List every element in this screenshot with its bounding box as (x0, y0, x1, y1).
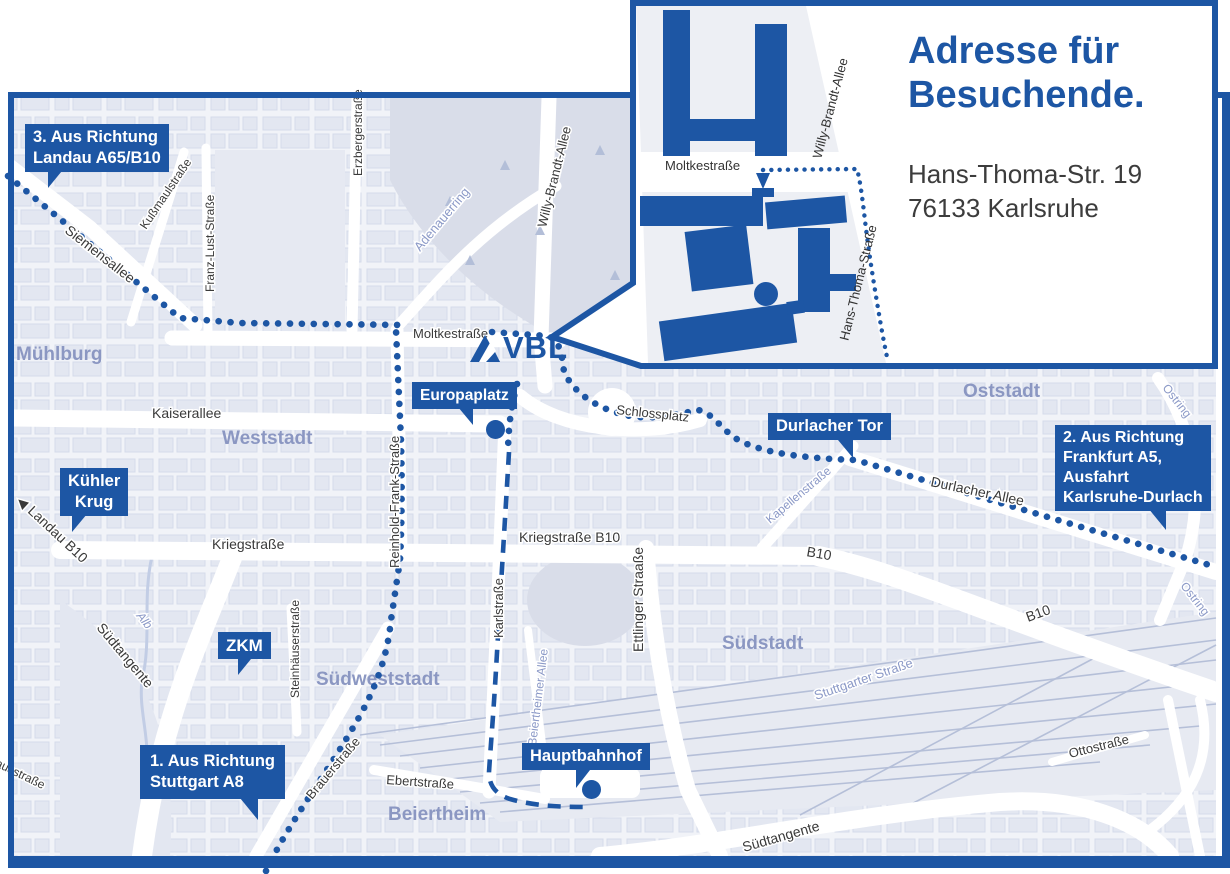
label-from-stuttgart: 1. Aus Richtung Stuttgart A8 (140, 745, 285, 799)
label-europaplatz: Europaplatz (412, 382, 517, 409)
label-line: Kühler (68, 471, 120, 492)
label-hauptbahnhof: Hauptbahnhof (522, 743, 650, 770)
district-weststadt: Weststadt (222, 428, 313, 449)
street-ettlinger-strasse: Ettlinger Straaße (630, 547, 646, 652)
label-line: Europaplatz (420, 387, 509, 404)
label-kuehler-krug-pointer (72, 514, 87, 532)
label-zkm: ZKM (218, 632, 271, 659)
inset-title: Adresse für Besuchende. (908, 30, 1145, 117)
street-karlstrasse: Karlstraße (491, 578, 506, 638)
label-line: Hauptbahnhof (530, 747, 642, 765)
label-zkm-pointer (238, 659, 251, 675)
label-line: Krug (68, 492, 120, 513)
europaplatz-stop-marker (486, 420, 505, 439)
label-durlacher-tor-pointer (838, 440, 853, 458)
inset-address: Hans-Thoma-Str. 19 76133 Karlsruhe (908, 158, 1142, 226)
street-kriegstrasse: Kriegstraße (212, 536, 285, 552)
inset-address-line: Hans-Thoma-Str. 19 (908, 158, 1142, 192)
label-line: Frankfurt A5, (1063, 448, 1203, 468)
district-beiertheim: Beiertheim (388, 804, 486, 825)
label-from-frankfurt-pointer (1148, 508, 1166, 530)
label-from-frankfurt: 2. Aus Richtung Frankfurt A5, Ausfahrt K… (1055, 425, 1211, 511)
label-europaplatz-pointer (458, 407, 473, 425)
label-kuehler-krug: Kühler Krug (60, 468, 128, 516)
label-line: Durlacher Tor (776, 417, 883, 435)
district-suedstadt: Südstadt (722, 633, 804, 654)
label-line: Stuttgart A8 (150, 772, 275, 793)
label-line: Ausfahrt (1063, 468, 1203, 488)
label-durlacher-tor: Durlacher Tor (768, 413, 891, 440)
district-oststadt: Oststadt (963, 381, 1041, 402)
inset-address-line: 76133 Karlsruhe (908, 192, 1142, 226)
hauptbahnhof-stop-marker (582, 780, 601, 799)
street-steinhaeuserstrasse: Steinhäuserstraße (288, 600, 302, 698)
karlsruhe-directions-map: Mühlburg Weststadt Oststadt Südstadt Süd… (0, 0, 1230, 874)
label-line: 1. Aus Richtung (150, 751, 275, 772)
inset-title-line: Adresse für (908, 30, 1145, 74)
label-from-stuttgart-pointer (240, 798, 258, 820)
street-kriegstrasse-b10: Kriegstraße B10 (519, 529, 620, 545)
inset-street-moltkestrasse: Moltkestraße (665, 158, 740, 173)
label-line: Karlsruhe-Durlach (1063, 488, 1203, 508)
street-kaiserallee: Kaiserallee (152, 405, 221, 421)
label-line: ZKM (226, 636, 263, 655)
label-line: 2. Aus Richtung (1063, 428, 1203, 448)
inset-title-line: Besuchende. (908, 74, 1145, 118)
street-reinhold-frank-strasse: Reinhold-Frank-Straße (387, 436, 402, 568)
